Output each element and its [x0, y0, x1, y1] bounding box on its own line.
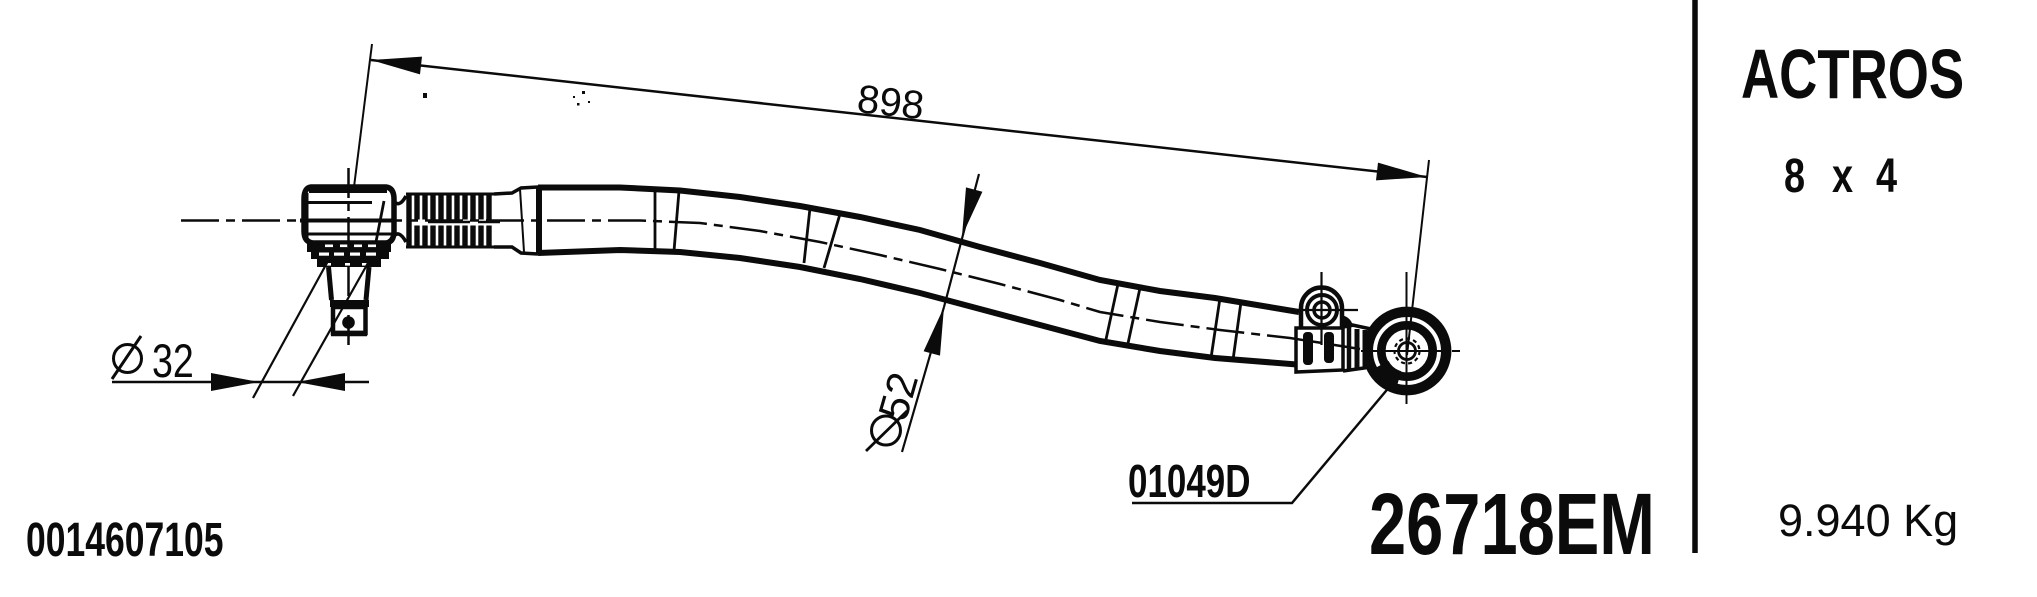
svg-text:8: 8	[1784, 150, 1805, 203]
svg-text:01049D: 01049D	[1128, 455, 1250, 507]
svg-text:ACTROS: ACTROS	[1741, 36, 1964, 114]
svg-text:898: 898	[855, 77, 926, 128]
svg-text:9.940 Kg: 9.940 Kg	[1778, 495, 1958, 546]
svg-text:4: 4	[1876, 150, 1897, 203]
svg-text:32: 32	[152, 335, 194, 388]
svg-text:0014607105: 0014607105	[26, 513, 224, 566]
svg-text:26718EM: 26718EM	[1369, 477, 1655, 573]
svg-text:x: x	[1832, 150, 1853, 203]
